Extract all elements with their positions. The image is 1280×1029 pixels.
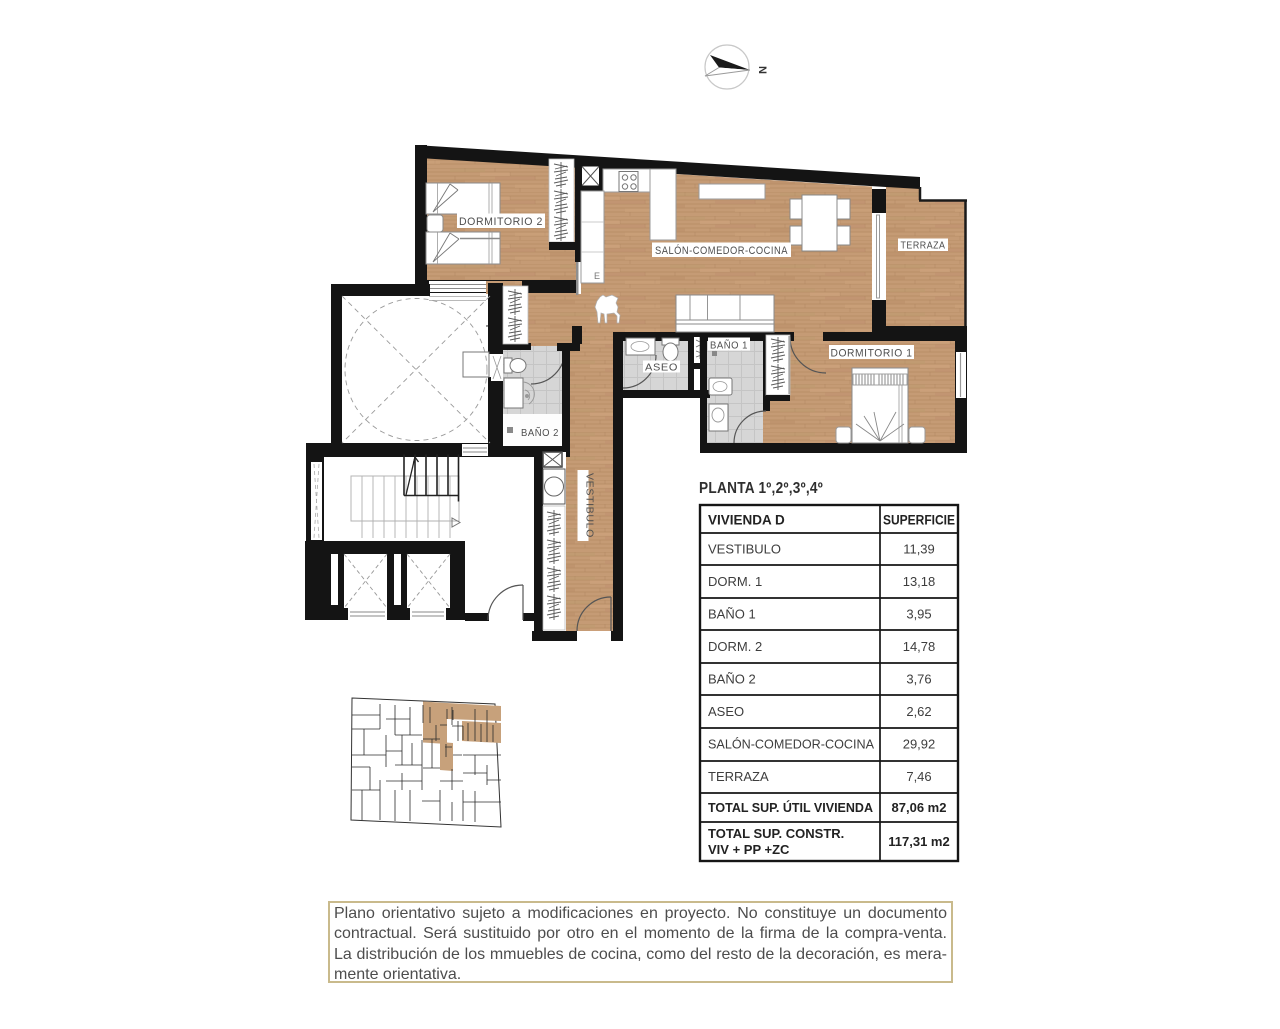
svg-text:BAÑO 1: BAÑO 1 bbox=[710, 339, 748, 352]
svg-text:TOTAL SUP. ÚTIL VIVIENDA: TOTAL SUP. ÚTIL VIVIENDA bbox=[708, 800, 874, 815]
svg-text:2,62: 2,62 bbox=[906, 704, 931, 719]
svg-text:7,46: 7,46 bbox=[906, 769, 931, 784]
svg-text:VESTIBULO: VESTIBULO bbox=[708, 542, 781, 557]
svg-text:SUPERFICIE: SUPERFICIE bbox=[883, 513, 955, 528]
svg-text:117,31 m2: 117,31 m2 bbox=[888, 834, 949, 849]
svg-text:SALÓN-COMEDOR-COCINA: SALÓN-COMEDOR-COCINA bbox=[655, 244, 788, 257]
svg-text:29,92: 29,92 bbox=[903, 737, 936, 752]
svg-text:TERRAZA: TERRAZA bbox=[901, 240, 946, 252]
svg-text:VESTIBULO: VESTIBULO bbox=[584, 473, 596, 538]
svg-text:N: N bbox=[756, 66, 768, 74]
svg-text:DORMITORIO 1: DORMITORIO 1 bbox=[831, 348, 913, 360]
svg-text:DORM. 2: DORM. 2 bbox=[708, 639, 762, 654]
svg-text:11,39: 11,39 bbox=[903, 542, 935, 557]
svg-text:PLANTA 1º,2º,3º,4º: PLANTA 1º,2º,3º,4º bbox=[699, 480, 823, 497]
svg-text:13,18: 13,18 bbox=[903, 574, 936, 589]
svg-text:BAÑO 2: BAÑO 2 bbox=[521, 426, 559, 439]
svg-text:ASEO: ASEO bbox=[708, 704, 744, 719]
svg-text:BAÑO 2: BAÑO 2 bbox=[708, 672, 756, 687]
svg-text:DORM. 1: DORM. 1 bbox=[708, 574, 762, 589]
svg-text:BAÑO 1: BAÑO 1 bbox=[708, 607, 756, 622]
svg-text:DORMITORIO 2: DORMITORIO 2 bbox=[459, 216, 543, 228]
svg-text:TERRAZA: TERRAZA bbox=[708, 769, 769, 784]
svg-text:SALÓN-COMEDOR-COCINA: SALÓN-COMEDOR-COCINA bbox=[708, 737, 874, 752]
svg-text:87,06 m2: 87,06 m2 bbox=[892, 800, 947, 815]
svg-text:3,76: 3,76 bbox=[906, 672, 931, 687]
svg-text:14,78: 14,78 bbox=[903, 639, 936, 654]
svg-text:VIVIENDA D: VIVIENDA D bbox=[708, 513, 785, 528]
svg-text:VIV + PP +ZC: VIV + PP +ZC bbox=[708, 842, 790, 857]
svg-text:3,95: 3,95 bbox=[906, 607, 931, 622]
svg-text:ASEO: ASEO bbox=[645, 362, 678, 374]
svg-text:E: E bbox=[594, 271, 600, 281]
svg-text:TOTAL SUP. CONSTR.: TOTAL SUP. CONSTR. bbox=[708, 826, 844, 841]
